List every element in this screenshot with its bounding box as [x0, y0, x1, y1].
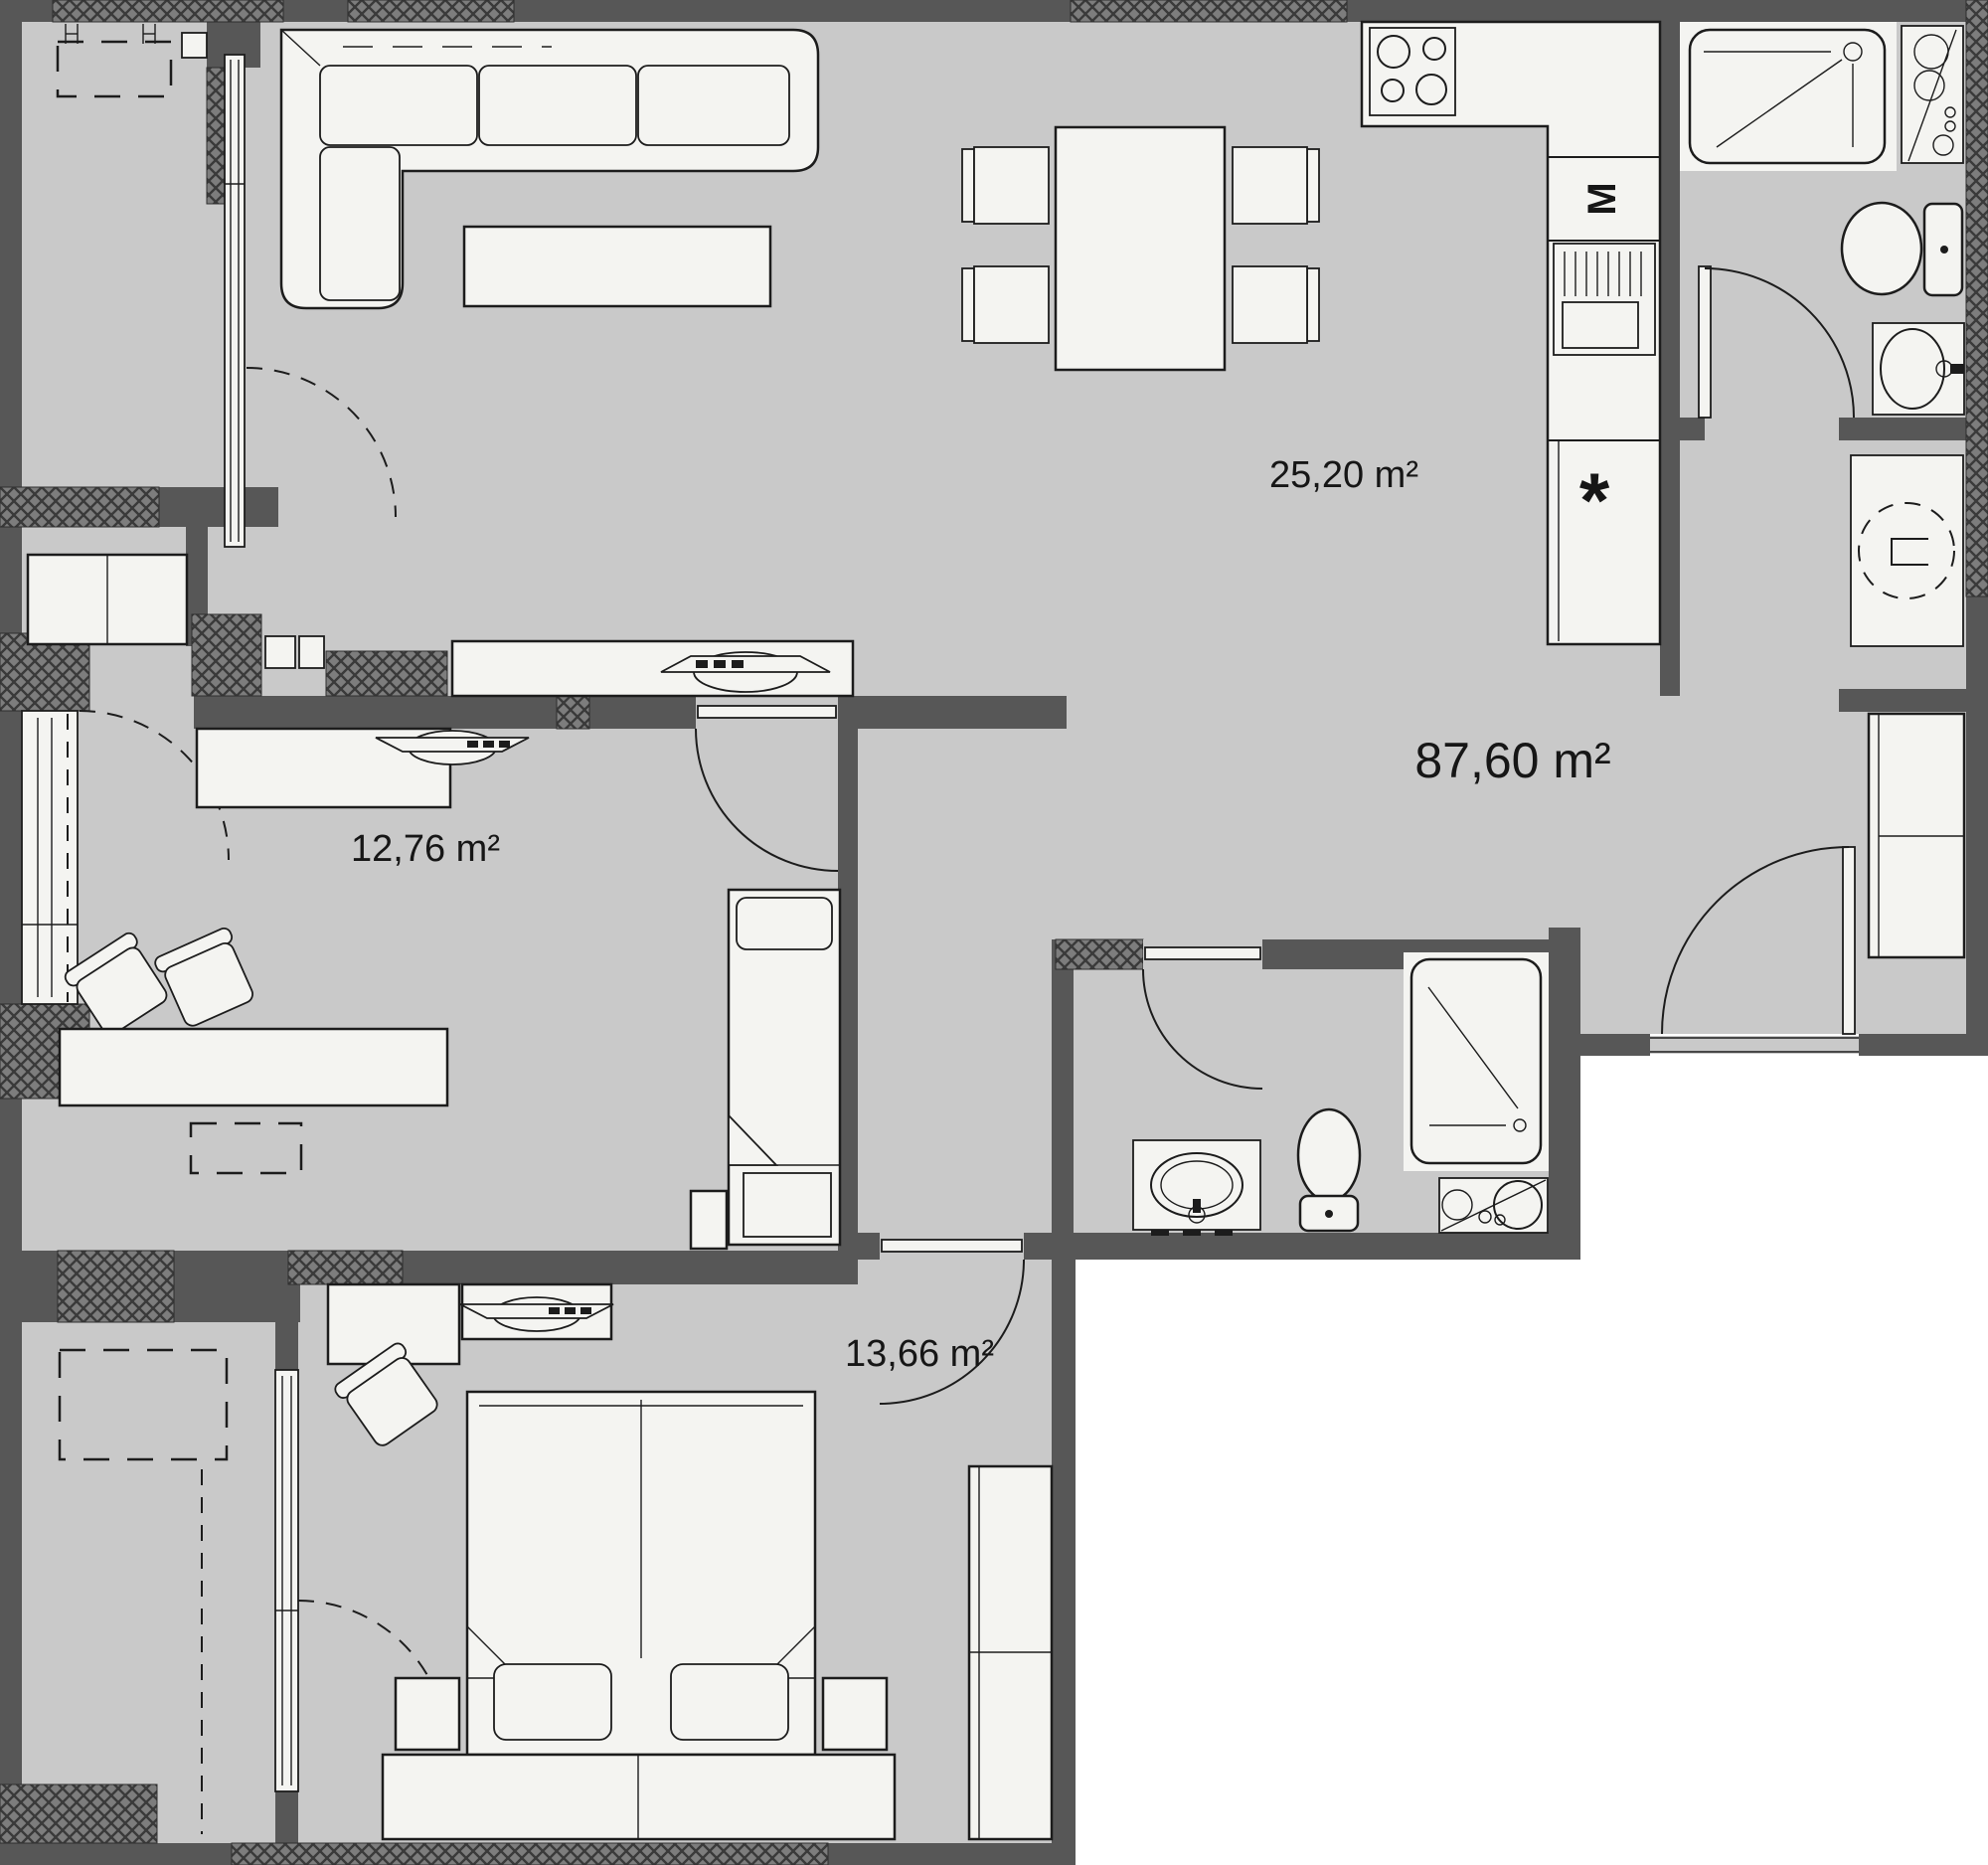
- dining-chair: [962, 266, 1049, 343]
- hall-closet: [1869, 714, 1964, 957]
- wardrobe-bedroom2: [969, 1466, 1052, 1839]
- sink-2: [1133, 1140, 1260, 1236]
- floor-plan-canvas: M *: [0, 0, 1988, 1865]
- stove: [1370, 28, 1455, 115]
- nightstand-bedroom1: [691, 1191, 727, 1249]
- shower-tray-2: [1411, 959, 1541, 1163]
- wall-niche-boxes: [265, 636, 324, 668]
- floor-plan-drawing: M *: [0, 0, 1988, 1865]
- closet-nook-wardrobe: [28, 555, 187, 644]
- balcony1-window: [225, 55, 245, 547]
- total-area-label: 87,60 m²: [1414, 733, 1610, 788]
- sink-1: [1873, 323, 1964, 415]
- fridge-label: *: [1579, 456, 1610, 544]
- nightstand-left: [396, 1678, 459, 1750]
- dining-chair: [1233, 266, 1319, 343]
- kitchen-sink-unit: [1554, 244, 1655, 355]
- bedroom1-area-label: 12,76 m²: [351, 828, 500, 870]
- coffee-table: [464, 227, 770, 306]
- dining-chair: [1233, 147, 1319, 224]
- balcony-box: [182, 33, 207, 58]
- desk-bedroom1-bottom: [60, 1029, 447, 1105]
- microwave-label: M: [1580, 182, 1624, 215]
- double-bed: [467, 1392, 815, 1755]
- bedroom1-window: [22, 711, 78, 1004]
- washing-machine: [1439, 1178, 1548, 1233]
- nightstand-right: [823, 1678, 887, 1750]
- toilet-1: [1842, 203, 1962, 295]
- tv-sideboard: [452, 641, 853, 696]
- bedroom2-area-label: 13,66 m²: [845, 1333, 994, 1375]
- tv-unit-bedroom2: [460, 1284, 613, 1339]
- single-bed: [729, 890, 840, 1245]
- toilet-2: [1298, 1109, 1360, 1231]
- water-heater: [1851, 455, 1963, 646]
- appliance-panel: [1902, 26, 1963, 163]
- dining-table: [1056, 127, 1225, 370]
- living-area-label: 25,20 m²: [1269, 454, 1418, 496]
- shower-tray-1: [1690, 30, 1885, 163]
- dining-chair: [962, 147, 1049, 224]
